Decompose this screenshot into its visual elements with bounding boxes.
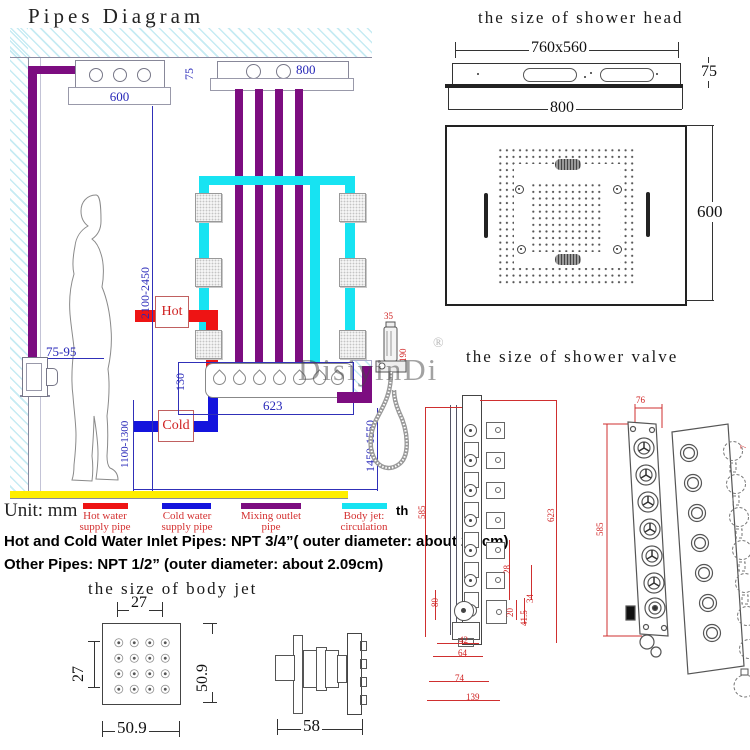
- valve-plate-line: [456, 405, 457, 635]
- tab-hole: [495, 487, 501, 493]
- head-dot: [584, 76, 586, 78]
- valve-side-drawing: [415, 393, 565, 713]
- screw: [517, 245, 526, 254]
- led-window: [555, 254, 581, 265]
- valve-stem: [464, 514, 477, 527]
- bodyjet-loop-mid: [310, 176, 320, 366]
- jet-side-bump: [360, 695, 367, 705]
- dimline: [556, 400, 557, 643]
- valve-stem: [464, 424, 477, 437]
- arm-hole: [276, 64, 291, 79]
- dimline-floor: [133, 489, 378, 490]
- legend-swatch-bodyjet: [342, 503, 387, 509]
- screw: [515, 185, 524, 194]
- legend-line: supply pipe: [161, 521, 212, 533]
- waterfall-slot: [646, 192, 650, 237]
- dim-valve3d-width: 76: [636, 395, 645, 405]
- head-bottom-view: [445, 125, 687, 306]
- dimline: [516, 600, 517, 620]
- dim-valve-height: 623: [546, 498, 556, 522]
- dim-valve-drop: 130: [173, 363, 188, 391]
- head-side-view: [452, 63, 681, 86]
- dim-arm-right: 800: [296, 62, 316, 78]
- dim-80: 80: [430, 589, 440, 607]
- body-jet-nozzle: [195, 193, 222, 222]
- jet-nozzle-grid: [111, 635, 173, 697]
- dim-head-panel: 760x560: [529, 39, 589, 57]
- wall-mixer-inner: [26, 363, 42, 391]
- head-slot: [523, 68, 577, 82]
- screw: [613, 245, 622, 254]
- dim-jet-size-h: 50.9: [115, 718, 149, 738]
- dim-42: 42: [459, 635, 468, 645]
- valve-3d-drawing: [592, 396, 750, 750]
- jet-dimline-pitch-v: [94, 641, 95, 687]
- dim-ceiling-height: 2100-2450: [138, 247, 153, 319]
- dimline: [427, 700, 500, 701]
- dim-jet-size-v: 50.9: [192, 634, 214, 692]
- head-dot: [590, 72, 592, 74]
- head-dot: [656, 73, 658, 75]
- legend-label-bodyjet: Body jet: circulation: [329, 511, 399, 533]
- mixing-pipe-riser: [275, 89, 283, 367]
- tab-hole: [495, 517, 501, 523]
- mixing-pipe-riser: [295, 89, 303, 367]
- dim-jet-depth: 58: [301, 716, 322, 736]
- head-dot: [477, 73, 479, 75]
- dim-head-thickness: 75: [699, 63, 719, 81]
- valve-stem: [464, 544, 477, 557]
- dim-139: 139: [466, 692, 480, 702]
- arm-hole: [246, 64, 261, 79]
- dim-valve-holes: 585: [417, 495, 427, 519]
- floor-edge: [10, 498, 348, 499]
- dim-valve3d-knob: 7: [739, 437, 748, 449]
- pipes-diagram-title: Pipes Diagram: [28, 4, 204, 29]
- waterfall-slot: [484, 193, 488, 238]
- arm-hole: [137, 68, 151, 82]
- head-slot: [600, 68, 654, 82]
- person-silhouette: [56, 192, 128, 492]
- jet-side-taper: [337, 655, 347, 683]
- arm-hole: [89, 68, 103, 82]
- dim-valve-width: 623: [263, 398, 283, 414]
- legend-line: circulation: [340, 521, 387, 533]
- dimline: [425, 407, 462, 408]
- legend-line: supply pipe: [79, 521, 130, 533]
- dimline-cold-height: [133, 400, 134, 491]
- tab-hole: [495, 547, 501, 553]
- legend-swatch-mixing: [241, 503, 301, 509]
- jet-front-view: [102, 623, 181, 705]
- hot-label: Hot: [162, 304, 183, 319]
- body-jet-title: the size of body jet: [88, 579, 257, 599]
- unit-label: Unit: mm: [4, 500, 77, 522]
- shower-valve-title: the size of shower valve: [466, 347, 678, 367]
- jet-dim-tick: [362, 719, 363, 735]
- jet-dim-tick: [102, 721, 103, 737]
- legend-swatch-cold: [162, 503, 211, 509]
- legend-partial-text: th: [396, 503, 408, 518]
- legend-label-hot: Hot water supply pipe: [70, 511, 140, 533]
- jet-side-bump: [360, 641, 367, 651]
- registered-mark: ®: [433, 336, 444, 352]
- legend-swatch-hot: [83, 503, 128, 509]
- jet-dim-tick: [203, 702, 217, 703]
- valve-plate-line: [450, 405, 451, 635]
- head-ext-line: [448, 88, 449, 109]
- dim-valve3d-height: 585: [595, 512, 605, 536]
- dim-head-depth: 600: [695, 202, 725, 222]
- tab-hole: [495, 427, 501, 433]
- valve-stem: [464, 484, 477, 497]
- jet-dim-tick: [88, 687, 100, 688]
- inner-wall-line: [40, 58, 41, 491]
- arm-left-plate: 600: [68, 87, 171, 105]
- jet-side-nut: [275, 655, 295, 681]
- jet-side-bump: [360, 659, 367, 669]
- body-jet-nozzle: [195, 258, 222, 287]
- tab-hole: [495, 577, 501, 583]
- body-jet-nozzle: [339, 193, 366, 222]
- mixing-pipe-riser: [235, 89, 243, 367]
- head-ceiling-plate: [445, 84, 683, 88]
- head-ext-line: [682, 88, 683, 109]
- body-jet-nozzle: [339, 258, 366, 287]
- jet-side-bump: [360, 677, 367, 687]
- legend-label-cold: Cold water supply pipe: [152, 511, 222, 533]
- dimline: [480, 400, 556, 401]
- head-ext-line: [686, 300, 714, 301]
- shower-arm-left: [75, 60, 165, 89]
- dimline: [425, 407, 426, 637]
- dim-34: 34: [525, 587, 535, 603]
- floor-line: [10, 491, 348, 498]
- jet-dim-tick: [203, 623, 217, 624]
- dim-20: 20: [505, 601, 515, 617]
- body-jet-nozzle: [195, 330, 222, 359]
- bodyjet-loop-top: [199, 176, 355, 185]
- cold-label: Cold: [162, 418, 189, 433]
- legend-label-mixing: Mixing outlet pipe: [236, 511, 306, 533]
- pipe-note-2: Other Pipes: NPT 1/2” (outer diameter: a…: [4, 556, 383, 573]
- dim-64: 64: [458, 648, 467, 658]
- shower-head-title: the size of shower head: [478, 8, 684, 28]
- jet-dim-tick: [179, 721, 180, 737]
- arm-hole: [113, 68, 127, 82]
- ceiling-hatch: [10, 28, 372, 58]
- dim-head-width: 800: [548, 99, 576, 117]
- dim-74: 74: [455, 673, 464, 683]
- tab-hole: [496, 609, 502, 615]
- hot-label-box: Hot: [155, 296, 189, 328]
- valve-stem: [464, 454, 477, 467]
- dim-28: 28: [502, 558, 512, 574]
- dim-wall-outlet: 75-95: [46, 344, 76, 360]
- wall-mixer-handle: [46, 368, 58, 386]
- mixing-pipe-riser: [255, 89, 263, 367]
- spray-center-block: [530, 182, 604, 252]
- brand-watermark: DisiyinDi: [298, 352, 438, 388]
- jet-dim-tick: [277, 719, 278, 735]
- mixing-pipe-wall-vertical: [28, 66, 37, 360]
- dim-arm-left: 600: [110, 89, 130, 104]
- dim-jet-pitch-v: 27: [68, 646, 90, 682]
- dim-41-5: 41.5: [519, 604, 529, 626]
- legend-line: pipe: [262, 521, 281, 533]
- handheld-shower: [358, 310, 424, 482]
- dimline: [437, 643, 479, 644]
- valve-inlet-dot: [461, 608, 466, 613]
- valve-stem: [464, 574, 477, 587]
- dim-jet-pitch-h: 27: [129, 594, 149, 612]
- product-dimension-sheet: Pipes Diagram 600 75 800 Hot: [0, 0, 750, 750]
- tab-hole: [495, 457, 501, 463]
- screw: [613, 185, 622, 194]
- dim-arm-gap: 75: [182, 58, 197, 80]
- head-ext-line: [686, 125, 714, 126]
- dim-cold-height: 1100-1300: [119, 404, 131, 468]
- wall-hatch: [10, 28, 28, 497]
- led-window: [555, 159, 581, 170]
